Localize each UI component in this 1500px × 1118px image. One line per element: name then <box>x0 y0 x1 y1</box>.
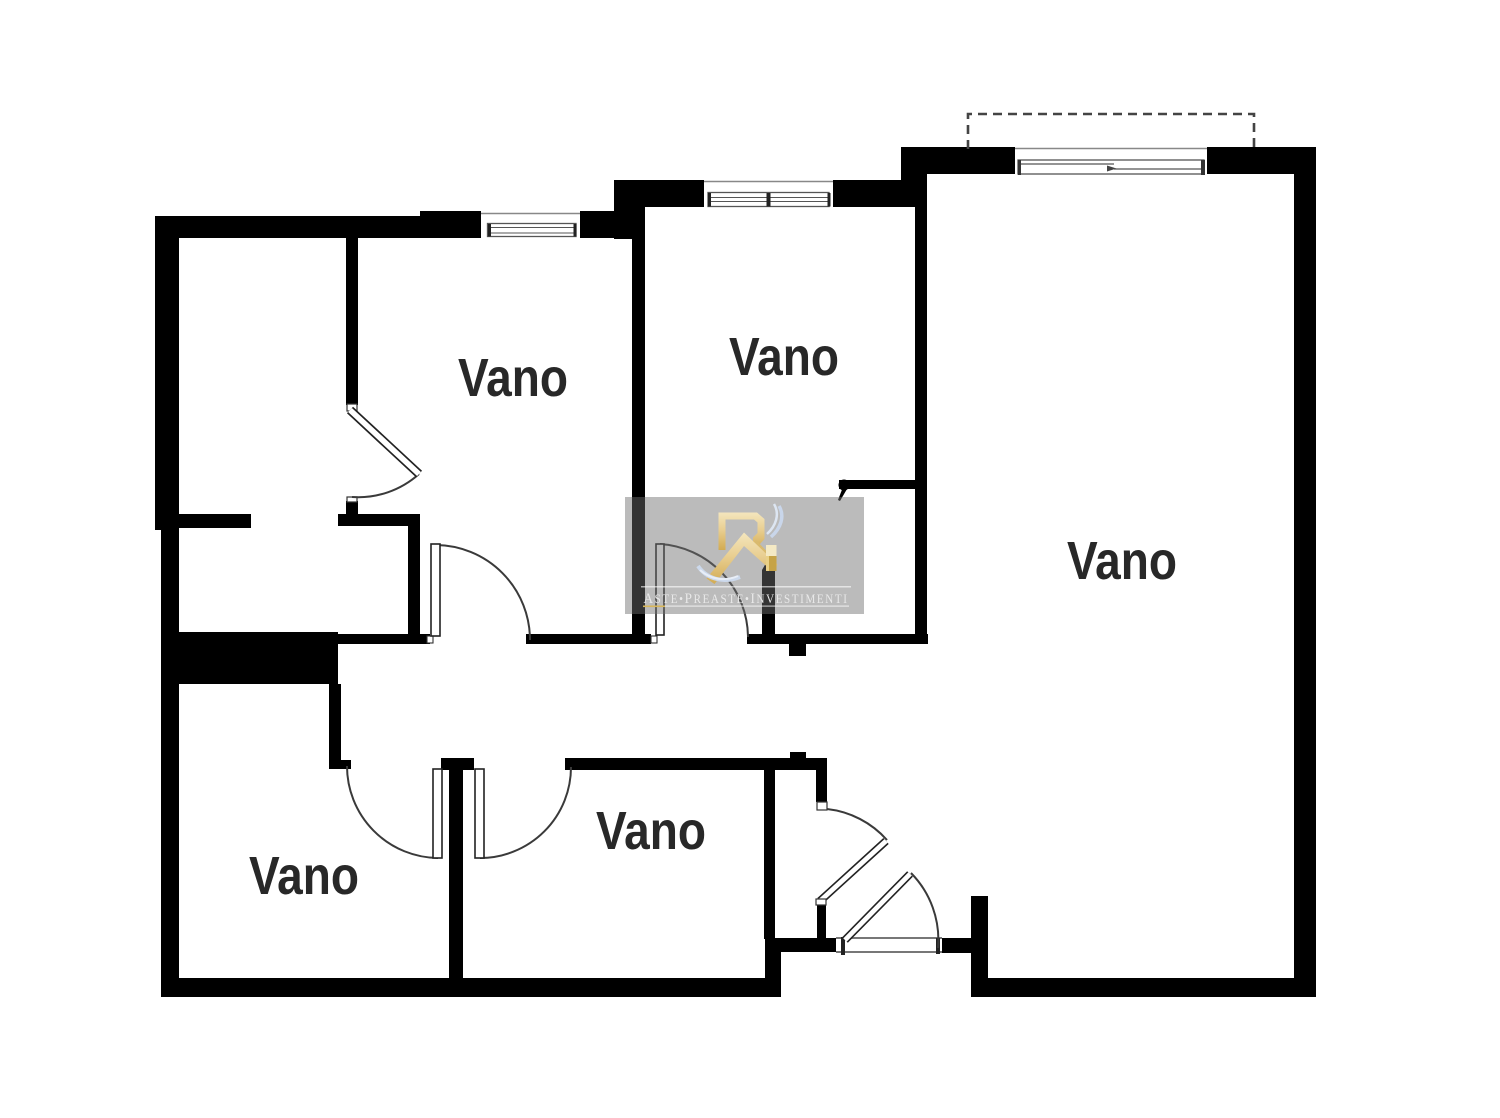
svg-text:ASTE•PREASTE•INVESTIMENTI: ASTE•PREASTE•INVESTIMENTI <box>644 591 849 607</box>
svg-text:Vano: Vano <box>729 327 839 387</box>
svg-text:Vano: Vano <box>249 846 359 906</box>
svg-text:Vano: Vano <box>596 801 706 861</box>
svg-text:Vano: Vano <box>1067 531 1177 591</box>
svg-text:Vano: Vano <box>458 348 568 408</box>
